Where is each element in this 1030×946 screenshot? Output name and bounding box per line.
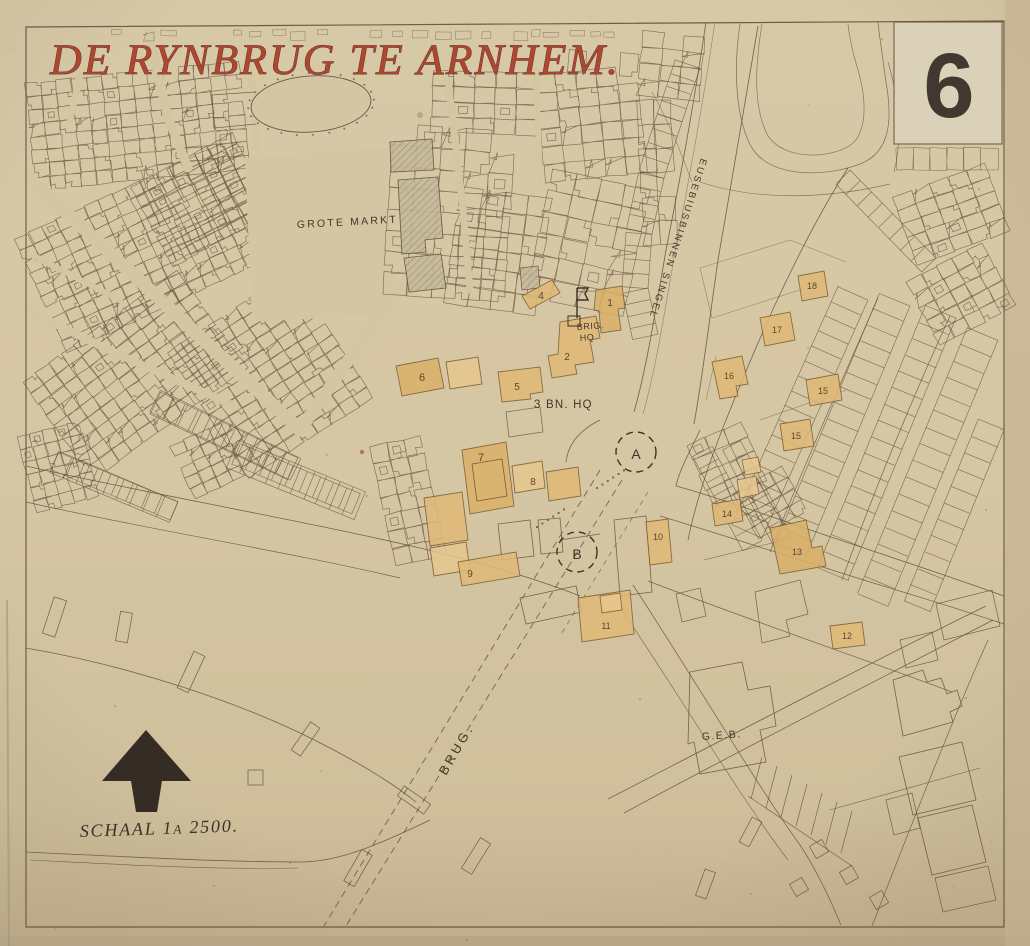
svg-text:B: B [572, 546, 581, 562]
svg-text:14: 14 [722, 509, 732, 519]
svg-text:5: 5 [514, 382, 520, 393]
svg-text:HQ: HQ [579, 332, 594, 343]
svg-text:17: 17 [772, 325, 782, 335]
svg-text:2: 2 [564, 352, 570, 363]
svg-text:10: 10 [653, 532, 663, 542]
svg-text:12: 12 [842, 631, 852, 641]
svg-text:DE RYNBRUG TE ARNHEM.: DE RYNBRUG TE ARNHEM. [49, 37, 620, 84]
svg-text:BRIG.: BRIG. [576, 320, 604, 332]
svg-text:18: 18 [807, 281, 817, 291]
svg-text:4: 4 [538, 291, 544, 302]
svg-text:15: 15 [818, 386, 828, 396]
svg-text:6: 6 [419, 372, 425, 384]
svg-text:16: 16 [724, 371, 734, 381]
svg-text:1: 1 [607, 298, 613, 309]
svg-text:A: A [631, 446, 641, 462]
svg-text:15: 15 [791, 431, 801, 441]
svg-text:7: 7 [478, 452, 484, 464]
svg-text:9: 9 [467, 569, 473, 580]
svg-text:6: 6 [923, 35, 974, 137]
svg-text:3 BN. HQ: 3 BN. HQ [534, 399, 593, 411]
svg-text:8: 8 [530, 477, 536, 488]
svg-text:13: 13 [792, 547, 802, 557]
svg-text:11: 11 [601, 621, 610, 631]
